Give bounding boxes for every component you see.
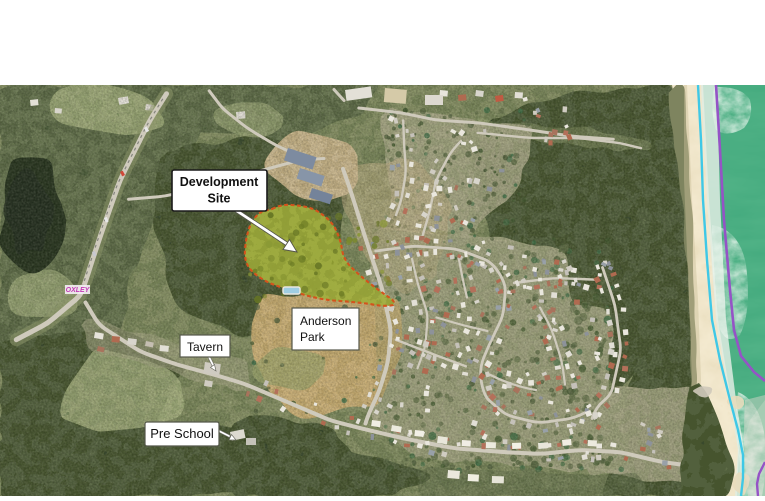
svg-text:Pre School: Pre School bbox=[150, 426, 214, 441]
svg-text:Tavern: Tavern bbox=[187, 340, 223, 354]
svg-text:Anderson: Anderson bbox=[300, 314, 351, 328]
svg-text:OXLEY: OXLEY bbox=[66, 287, 91, 294]
svg-text:Development: Development bbox=[180, 175, 259, 189]
svg-text:Park: Park bbox=[300, 330, 326, 344]
svg-text:Site: Site bbox=[208, 192, 231, 206]
